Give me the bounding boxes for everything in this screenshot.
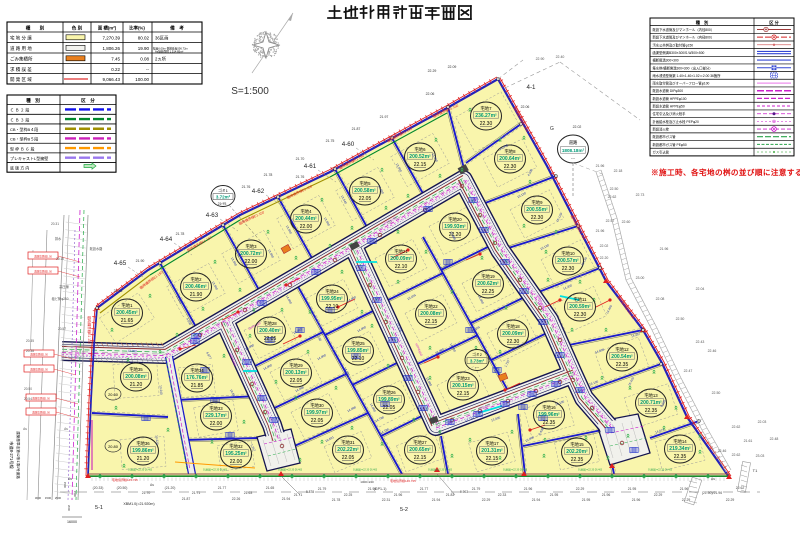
svg-text:22.29: 22.29 [482, 498, 491, 502]
svg-text:22.62: 22.62 [732, 453, 741, 457]
svg-text:202.20m²: 202.20m² [566, 449, 588, 455]
svg-text:22.03: 22.03 [758, 420, 767, 424]
svg-text:宅地13: 宅地13 [644, 392, 658, 398]
svg-text:22.30: 22.30 [480, 121, 493, 127]
svg-text:4-65: 4-65 [114, 260, 127, 267]
svg-text:22.05: 22.05 [342, 455, 355, 461]
svg-text:宅地32: 宅地32 [229, 443, 243, 449]
svg-text:GL側溝▼22.30 26.463: GL側溝▼22.30 26.463 [203, 468, 228, 472]
svg-text:22.50: 22.50 [676, 317, 685, 321]
svg-text:新設都市ガス管 PEφ50: 新設都市ガス管 PEφ50 [653, 142, 687, 147]
svg-text:道路境界線1.50: 道路境界線1.50 [30, 353, 49, 357]
svg-text:21.83: 21.83 [446, 493, 455, 497]
svg-text:23.03: 23.03 [756, 454, 765, 458]
svg-text:塩ビ管φ250: 塩ビ管φ250 [52, 296, 69, 301]
svg-text:5-1: 5-1 [95, 505, 103, 511]
svg-text:22.05: 22.05 [383, 405, 396, 411]
svg-text:22.15: 22.15 [457, 391, 470, 397]
svg-text:200.59m²: 200.59m² [569, 304, 591, 310]
svg-text:100.00: 100.00 [135, 77, 149, 82]
svg-text:宅地9: 宅地9 [532, 199, 544, 205]
svg-text:1,806.26: 1,806.26 [102, 46, 120, 51]
svg-text:22.02: 22.02 [600, 244, 609, 248]
svg-text:21.94: 21.94 [282, 497, 291, 501]
svg-text:宅地27: 宅地27 [413, 439, 427, 445]
svg-text:※施工時、各宅地の桝の並び順に注意するこ: ※施工時、各宅地の桝の並び順に注意するこ [651, 167, 800, 177]
svg-text:22.29: 22.29 [682, 498, 691, 502]
svg-text:21.75: 21.75 [326, 139, 335, 143]
svg-text:21.73: 21.73 [218, 202, 227, 206]
svg-text:0.22: 0.22 [111, 67, 120, 72]
svg-text:21.71: 21.71 [294, 493, 303, 497]
svg-text:21.94: 21.94 [432, 498, 441, 502]
svg-text:道路境界線1.50: 道路境界線1.50 [34, 270, 53, 274]
svg-text:GL側溝▼22.30 26.463: GL側溝▼22.30 26.463 [648, 468, 673, 472]
svg-text:ごみ集積所: ごみ集積所 [10, 55, 33, 62]
svg-text:22.35: 22.35 [616, 362, 629, 368]
svg-text:T1: T1 [753, 468, 758, 473]
svg-text:函渠型側溝B300×300/S-W300×500: 函渠型側溝B300×300/S-W300×500 [653, 50, 705, 55]
svg-text:宅地31: 宅地31 [341, 439, 355, 445]
svg-text:宅地4: 宅地4 [301, 208, 313, 214]
svg-text:宅地1: 宅地1 [122, 302, 134, 308]
svg-text:219.34m²: 219.34m² [669, 446, 691, 452]
svg-text:GL側溝▼22.30 26.463: GL側溝▼22.30 26.463 [428, 468, 453, 472]
svg-text:21.96: 21.96 [602, 493, 611, 497]
svg-text:21.77: 21.77 [420, 487, 429, 491]
svg-text:200.62m²: 200.62m² [477, 281, 499, 287]
svg-text:プレキャストL型擁壁: プレキャストL型擁壁 [10, 155, 48, 161]
svg-text:22.57: 22.57 [606, 219, 615, 223]
svg-text:200.58m²: 200.58m² [354, 188, 376, 194]
svg-text:As舗装面積 1,514.85m²: As舗装面積 1,514.85m² [155, 50, 183, 54]
svg-text:20.38: 20.38 [26, 349, 34, 353]
svg-text:21.94: 21.94 [532, 498, 541, 502]
svg-text:(21.20): (21.20) [165, 486, 176, 490]
svg-text:200.65m²: 200.65m² [409, 447, 431, 453]
svg-text:0.08: 0.08 [140, 56, 149, 61]
svg-text:200.46m²: 200.46m² [185, 284, 207, 290]
svg-text:既設水道管 DIPφ300: 既設水道管 DIPφ300 [653, 88, 684, 93]
svg-text:宅地25: 宅地25 [351, 340, 365, 346]
svg-text:道路: 道路 [569, 139, 578, 146]
svg-text:21.90: 21.90 [190, 292, 203, 298]
svg-text:新設下水道管及びマンホール（内径800）: 新設下水道管及びマンホール（内径800） [653, 35, 715, 40]
svg-text:21.79: 21.79 [318, 487, 327, 491]
svg-text:195.25m²: 195.25m² [225, 451, 247, 457]
svg-text:21.96: 21.96 [596, 229, 605, 233]
svg-text:宅地19: 宅地19 [481, 273, 495, 279]
svg-text:雨水取付管及びオーバーフロー管φ100: 雨水取付管及びオーバーフロー管φ100 [653, 81, 710, 86]
svg-text:21.78: 21.78 [176, 232, 185, 236]
svg-text:備 考: 備 考 [170, 25, 184, 32]
svg-text:21.95: 21.95 [582, 498, 591, 502]
svg-text:宅地2: 宅地2 [191, 276, 203, 282]
svg-text:計画給水栓及び止水栓 PEPφ20: 計画給水栓及び止水栓 PEPφ20 [653, 119, 699, 124]
svg-text:20.10: 20.10 [56, 257, 64, 261]
svg-text:宅地18: 宅地18 [506, 323, 520, 329]
svg-text:S=1:500: S=1:500 [231, 86, 269, 97]
svg-text:As: As [150, 483, 154, 487]
svg-text:21.87: 21.87 [352, 127, 361, 131]
svg-text:22.26: 22.26 [232, 497, 241, 501]
svg-text:集水桝/横断側溝300×300（出入口部分）: 集水桝/横断側溝300×300（出入口部分） [653, 65, 713, 70]
svg-text:199.85m²: 199.85m² [347, 348, 369, 354]
svg-text:As: As [64, 427, 68, 431]
svg-text:宅 地 分 譲: 宅 地 分 譲 [10, 34, 32, 41]
svg-text:既設水路: 既設水路 [90, 246, 104, 251]
svg-text:22.48: 22.48 [770, 437, 779, 441]
svg-text:宅地境界線146.725: 宅地境界線146.725 [390, 478, 416, 483]
svg-text:229.17m²: 229.17m² [205, 413, 227, 419]
svg-text:区 分: 区 分 [81, 97, 95, 104]
svg-text:200.09m²: 200.09m² [502, 331, 524, 337]
svg-text:22.04: 22.04 [696, 287, 705, 291]
svg-text:199.96m²: 199.96m² [538, 412, 560, 418]
svg-text:21.63: 21.63 [244, 491, 253, 495]
svg-text:21.70: 21.70 [296, 157, 305, 161]
svg-text:22.46: 22.46 [708, 349, 717, 353]
svg-text:21.20: 21.20 [137, 456, 150, 462]
svg-text:236.27m²: 236.27m² [475, 113, 497, 119]
svg-text:200.08m²: 200.08m² [420, 311, 442, 317]
svg-text:21.87: 21.87 [182, 497, 191, 501]
svg-text:1500: 1500 [63, 482, 67, 489]
svg-text:宅地35: 宅地35 [129, 366, 143, 372]
svg-text:(20.33): (20.33) [93, 486, 104, 490]
svg-text:21.96: 21.96 [680, 487, 689, 491]
svg-text:21.95: 21.95 [628, 487, 637, 491]
svg-text:21.95: 21.95 [550, 493, 559, 497]
svg-text:4-1: 4-1 [527, 84, 537, 91]
svg-text:21.96: 21.96 [524, 487, 533, 491]
svg-text:200.08m²: 200.08m² [125, 374, 147, 380]
svg-text:道路境界線1.50: 道路境界線1.50 [32, 411, 51, 415]
svg-text:21.61: 21.61 [744, 439, 753, 443]
svg-text:4-61: 4-61 [304, 163, 317, 170]
svg-text:22.62: 22.62 [736, 486, 745, 490]
svg-text:道 路 用 地: 道 路 用 地 [10, 45, 32, 52]
svg-text:3000: 3000 [35, 496, 42, 500]
svg-text:22.00: 22.00 [245, 259, 258, 265]
svg-text:5.878: 5.878 [306, 490, 314, 494]
svg-text:200.44m²: 200.44m² [295, 216, 317, 222]
svg-text:22.20: 22.20 [600, 256, 609, 260]
svg-text:宅地12: 宅地12 [615, 346, 629, 352]
svg-text:宅地17: 宅地17 [485, 440, 499, 446]
svg-text:22.35: 22.35 [571, 457, 584, 463]
svg-text:22.10: 22.10 [352, 356, 365, 362]
svg-text:22.31: 22.31 [382, 498, 391, 502]
svg-text:宅地10: 宅地10 [561, 250, 575, 256]
svg-text:22.25: 22.25 [482, 289, 495, 295]
svg-text:高圧線: 高圧線 [59, 284, 69, 289]
svg-text:宅地7: 宅地7 [481, 105, 493, 111]
svg-text:176.76m²: 176.76m² [186, 375, 208, 381]
svg-text:13.240: 13.240 [159, 385, 164, 395]
svg-text:汚水公共桝及び取付管φ150: 汚水公共桝及び取付管φ150 [653, 42, 694, 47]
svg-text:種 別: 種 別 [26, 25, 45, 32]
svg-text:臨時構界線E1 150: 臨時構界線E1 150 [87, 316, 92, 344]
svg-text:21.70: 21.70 [142, 491, 151, 495]
svg-text:新設消火栓: 新設消火栓 [653, 127, 670, 132]
svg-text:道路境界線1.50: 道路境界線1.50 [34, 255, 53, 259]
svg-text:開 発 区 域: 開 発 区 域 [10, 76, 32, 83]
svg-text:22.35: 22.35 [674, 454, 687, 460]
svg-text:宅地5: 宅地5 [360, 180, 372, 186]
svg-text:GL側溝▼22.30 26.463: GL側溝▼22.30 26.463 [353, 468, 378, 472]
svg-text:200.57m²: 200.57m² [557, 258, 579, 264]
svg-text:200.64m²: 200.64m² [499, 156, 521, 162]
svg-text:宅地11: 宅地11 [573, 296, 587, 302]
svg-text:199.95m²: 199.95m² [321, 296, 343, 302]
svg-text:199.86m²: 199.86m² [132, 448, 154, 454]
svg-text:22.02: 22.02 [573, 125, 582, 129]
svg-text:22.05: 22.05 [264, 336, 277, 342]
svg-text:22.62: 22.62 [732, 425, 741, 429]
svg-text:200.72m²: 200.72m² [240, 251, 262, 257]
svg-text:21.79: 21.79 [472, 487, 481, 491]
svg-text:20.31: 20.31 [51, 222, 59, 226]
svg-text:22.05: 22.05 [290, 378, 303, 384]
svg-text:22.15: 22.15 [414, 162, 427, 168]
svg-text:22.15: 22.15 [425, 319, 438, 325]
svg-text:80.02: 80.02 [138, 35, 150, 40]
svg-text:As: As [711, 477, 715, 481]
svg-text:1500: 1500 [73, 491, 77, 498]
svg-text:Ｃ Ｂ ３ 段: Ｃ Ｂ ３ 段 [10, 116, 29, 122]
svg-text:宅地29: 宅地29 [289, 362, 303, 368]
svg-text:22.46: 22.46 [718, 449, 727, 453]
svg-text:21.97: 21.97 [380, 115, 389, 119]
svg-text:21.90: 21.90 [136, 259, 145, 263]
svg-text:16000: 16000 [67, 520, 77, 524]
svg-text:20.50: 20.50 [24, 387, 32, 391]
svg-text:199.97m²: 199.97m² [306, 410, 328, 416]
svg-text:22.05: 22.05 [359, 196, 372, 202]
svg-text:22.29: 22.29 [428, 69, 437, 73]
svg-text:21.71: 21.71 [192, 491, 201, 495]
svg-text:22.30: 22.30 [574, 312, 587, 318]
svg-text:4-60: 4-60 [342, 141, 355, 148]
svg-text:ゴミ2: ゴミ2 [472, 352, 482, 357]
svg-text:宅地14: 宅地14 [673, 438, 687, 444]
svg-text:底 版 方 向: 底 版 方 向 [10, 165, 29, 171]
svg-text:22.05: 22.05 [311, 418, 324, 424]
svg-text:4-64: 4-64 [160, 236, 173, 243]
svg-text:宅地23: 宅地23 [456, 375, 470, 381]
svg-text:20.80: 20.80 [108, 444, 119, 449]
svg-text:22.06: 22.06 [521, 105, 530, 109]
svg-text:22.29: 22.29 [726, 498, 735, 502]
svg-text:22.43: 22.43 [696, 340, 705, 344]
svg-text:22.15: 22.15 [486, 456, 499, 462]
svg-text:13.000: 13.000 [127, 349, 137, 354]
svg-text:22.30: 22.30 [562, 266, 575, 272]
svg-text:4-62: 4-62 [252, 188, 265, 195]
svg-text:---: --- [475, 365, 480, 370]
svg-text:19.90: 19.90 [138, 46, 150, 51]
svg-text:XBM1.0(=21.920m): XBM1.0(=21.920m) [123, 502, 154, 506]
svg-text:区 分: 区 分 [769, 19, 779, 26]
svg-text:既設都市ガス管: 既設都市ガス管 [653, 134, 677, 139]
svg-text:199.93m²: 199.93m² [444, 224, 466, 230]
svg-text:道路境界線1.50: 道路境界線1.50 [32, 397, 51, 401]
svg-text:(21.50)/21.96: (21.50)/21.96 [702, 491, 722, 495]
svg-text:22.30: 22.30 [507, 339, 520, 345]
svg-text:22.40: 22.40 [556, 55, 565, 59]
svg-text:22.18: 22.18 [614, 169, 623, 173]
svg-text:22.10: 22.10 [326, 304, 339, 310]
svg-text:1500: 1500 [45, 496, 52, 500]
svg-text:宅地21: 宅地21 [394, 248, 408, 254]
svg-text:宅地境界線145.725: 宅地境界線145.725 [112, 477, 138, 482]
svg-text:建築基準法第42条1項1号道路: 建築基準法第42条1項1号道路 [16, 431, 21, 479]
svg-text:22.00: 22.00 [210, 421, 223, 427]
svg-text:G: G [550, 126, 554, 132]
svg-text:比率(%): 比率(%) [129, 25, 145, 32]
svg-text:2ヵ所: 2ヵ所 [155, 55, 167, 62]
svg-text:22.50: 22.50 [610, 187, 619, 191]
svg-text:22.08: 22.08 [656, 297, 665, 301]
svg-text:型 枠 Ｂ ６ 段: 型 枠 Ｂ ６ 段 [10, 145, 34, 151]
svg-text:ガス引込管: ガス引込管 [653, 150, 670, 155]
svg-text:20.54: 20.54 [24, 397, 32, 401]
svg-text:新設水道管 HPPEφ100: 新設水道管 HPPEφ100 [653, 96, 687, 101]
svg-text:21.65: 21.65 [121, 318, 134, 324]
svg-text:22.00: 22.00 [300, 224, 313, 230]
svg-text:宅地6: 宅地6 [415, 146, 427, 152]
svg-text:GL側溝▼22.30 26.463: GL側溝▼22.30 26.463 [578, 468, 603, 472]
svg-text:市道8-271号線: 市道8-271号線 [8, 441, 15, 469]
svg-text:21.93: 21.93 [114, 289, 123, 293]
svg-text:21.96: 21.96 [394, 493, 403, 497]
svg-text:22.35: 22.35 [645, 408, 658, 414]
svg-text:200.52m²: 200.52m² [409, 154, 431, 160]
svg-text:宅地30: 宅地30 [310, 402, 324, 408]
svg-text:22.60: 22.60 [622, 220, 631, 224]
svg-text:21.78: 21.78 [264, 173, 273, 177]
svg-text:22.33: 22.33 [498, 493, 507, 497]
svg-text:7,270.39: 7,270.39 [102, 35, 120, 40]
svg-text:21.77: 21.77 [218, 486, 227, 490]
svg-text:202.22m²: 202.22m² [337, 447, 359, 453]
svg-text:201.31m²: 201.31m² [481, 448, 503, 454]
svg-text:As: As [68, 477, 72, 481]
svg-text:22.29: 22.29 [576, 487, 585, 491]
svg-text:2000: 2000 [67, 505, 71, 512]
svg-text:色 別: 色 別 [72, 25, 83, 32]
svg-text:宅地20: 宅地20 [448, 216, 462, 222]
svg-text:---: --- [571, 156, 576, 161]
svg-text:横断租溝300×300: 横断租溝300×300 [653, 58, 679, 63]
svg-text:宅地33: 宅地33 [209, 405, 223, 411]
svg-text:1808.18m²: 1808.18m² [562, 148, 585, 153]
svg-text:雨水浸透型管渠 1.40×1.40×1.02＝2.00 36: 雨水浸透型管渠 1.40×1.40×1.02＝2.00 36箇所 [653, 73, 722, 78]
svg-text:2500: 2500 [55, 496, 62, 500]
svg-text:22.62: 22.62 [608, 195, 617, 199]
svg-text:21.65: 21.65 [266, 486, 275, 490]
svg-text:3.73m²: 3.73m² [470, 358, 485, 363]
svg-text:200.55m²: 200.55m² [526, 207, 548, 213]
svg-text:22.73: 22.73 [636, 193, 645, 197]
svg-text:23.00: 23.00 [636, 276, 645, 280]
svg-text:面 積(m²): 面 積(m²) [98, 25, 117, 32]
svg-text:CB・型枠B５段: CB・型枠B５段 [10, 136, 38, 142]
svg-text:Ｃ Ｂ ２ 段: Ｃ Ｂ ２ 段 [10, 107, 29, 113]
svg-text:20.60: 20.60 [108, 392, 119, 397]
svg-text:22.10: 22.10 [395, 264, 408, 270]
svg-text:200.40m²: 200.40m² [259, 328, 281, 334]
svg-text:道路境界線1.50: 道路境界線1.50 [30, 368, 49, 372]
svg-text:22.15: 22.15 [414, 455, 427, 461]
svg-text:5-2: 5-2 [400, 507, 408, 513]
svg-text:22.30: 22.30 [504, 164, 517, 170]
svg-text:住宅引込及び消火栓手: 住宅引込及び消火栓手 [653, 111, 687, 116]
svg-text:GL側溝▼22.30 26.463: GL側溝▼22.30 26.463 [128, 468, 153, 472]
svg-text:22.90: 22.90 [536, 57, 545, 61]
svg-text:200.13m²: 200.13m² [285, 370, 307, 376]
svg-text:--: -- [146, 67, 149, 72]
svg-text:22.00: 22.00 [230, 459, 243, 465]
svg-text:宅地24: 宅地24 [325, 288, 339, 294]
svg-text:13.220: 13.220 [155, 435, 160, 445]
svg-text:9,066.43: 9,066.43 [102, 77, 120, 82]
svg-text:GL側溝▼22.30 26.463: GL側溝▼22.30 26.463 [503, 468, 528, 472]
svg-text:21.96: 21.96 [632, 498, 641, 502]
svg-text:200.71m²: 200.71m² [640, 400, 662, 406]
svg-text:21.85: 21.85 [191, 383, 204, 389]
svg-text:200.45m²: 200.45m² [116, 310, 138, 316]
svg-text:CB・型枠B４段: CB・型枠B４段 [10, 126, 38, 132]
svg-text:宅地28: 宅地28 [263, 320, 277, 326]
svg-text:20.57: 20.57 [58, 327, 66, 331]
svg-text:種 別: 種 別 [696, 19, 709, 26]
svg-text:宅地15: 宅地15 [570, 441, 584, 447]
svg-text:種 別: 種 別 [26, 97, 40, 104]
svg-text:4-63: 4-63 [206, 212, 219, 219]
svg-text:宅地26: 宅地26 [382, 389, 396, 395]
svg-text:200.09m²: 200.09m² [390, 256, 412, 262]
svg-text:7.45: 7.45 [111, 56, 120, 61]
svg-text:宅地3: 宅地3 [246, 243, 258, 249]
svg-text:22.47: 22.47 [684, 369, 693, 373]
svg-text:(20.50): (20.50) [117, 486, 128, 490]
svg-text:22.06: 22.06 [426, 92, 435, 96]
svg-text:宅地8: 宅地8 [505, 148, 517, 154]
svg-text:1000×240: 1000×240 [360, 480, 374, 484]
svg-text:22.50: 22.50 [712, 391, 721, 395]
svg-text:22.35: 22.35 [543, 420, 556, 426]
svg-text:199.89m²: 199.89m² [378, 397, 400, 403]
svg-text:200.54m²: 200.54m² [611, 354, 633, 360]
svg-text:21.76: 21.76 [296, 175, 305, 179]
svg-text:宅地34: 宅地34 [190, 367, 204, 373]
svg-text:宅地36: 宅地36 [136, 440, 150, 446]
svg-text:21.96: 21.96 [596, 164, 605, 168]
svg-text:21.20: 21.20 [130, 382, 143, 388]
svg-text:宅地22: 宅地22 [424, 303, 438, 309]
svg-text:22.30: 22.30 [531, 215, 544, 221]
svg-text:求 積 誤 差: 求 積 誤 差 [10, 66, 32, 73]
svg-text:As: As [23, 427, 27, 431]
svg-text:排水: 排水 [55, 236, 62, 241]
svg-text:22.09: 22.09 [448, 65, 457, 69]
svg-text:21.78: 21.78 [332, 498, 341, 502]
svg-text:20.35: 20.35 [26, 339, 34, 343]
svg-text:22.25: 22.25 [344, 493, 353, 497]
svg-text:既設下水道管及びマンホール（内径800）: 既設下水道管及びマンホール（内径800） [653, 27, 715, 32]
